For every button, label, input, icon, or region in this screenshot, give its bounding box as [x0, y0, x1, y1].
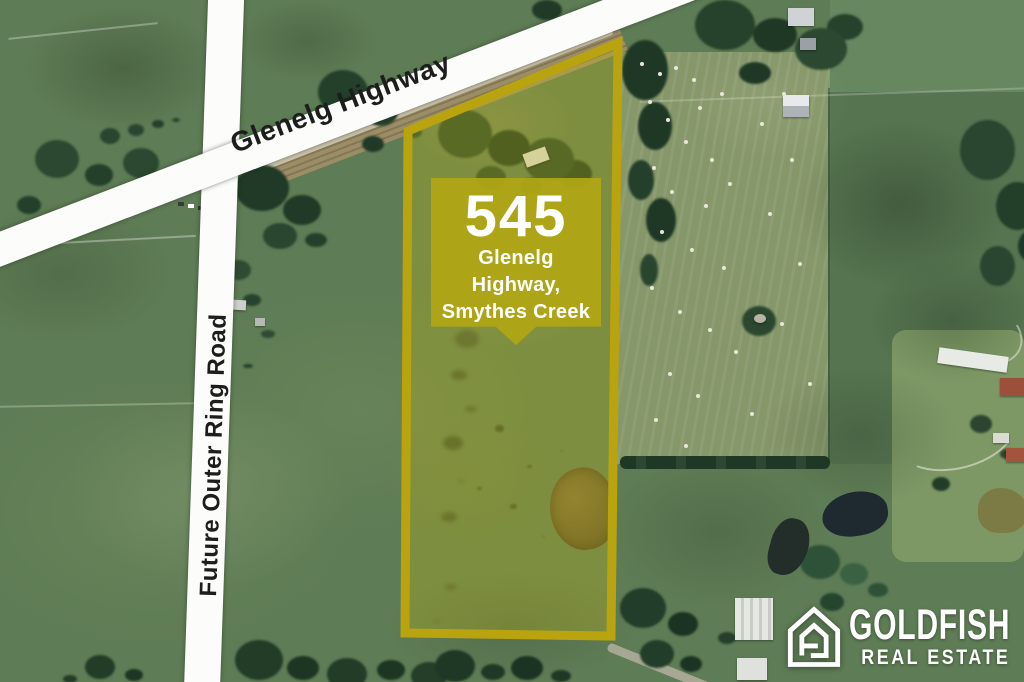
shrub-dots: [495, 425, 504, 432]
farm-track: [8, 22, 157, 40]
address-line-3: Smythes Creek: [431, 299, 601, 326]
tree-cluster: [438, 110, 492, 158]
listing-badge: 545 Glenelg Highway, Smythes Creek: [431, 178, 601, 345]
tree-cluster: [35, 140, 79, 178]
fence-line: [828, 92, 830, 462]
parked-cars: [178, 202, 184, 206]
shed-building: [737, 658, 767, 680]
house-building: [232, 300, 247, 311]
driveway: [606, 642, 721, 682]
creek-vegetation: [455, 330, 479, 348]
red-roof-house: [1000, 378, 1024, 396]
dam-pond: [542, 462, 624, 556]
address-line-2: Highway,: [431, 272, 601, 299]
tree-cluster: [85, 655, 115, 679]
house-outline-icon: [782, 600, 846, 674]
tree-cluster: [622, 40, 668, 100]
aerial-map: Glenelg Highway Future Outer Ring Road 5…: [0, 0, 1024, 682]
pond: [978, 488, 1024, 533]
house-building: [993, 433, 1009, 443]
tree-cluster: [235, 640, 283, 680]
tree-cluster: [960, 120, 1015, 180]
house-building: [788, 8, 814, 26]
shed-building: [783, 95, 809, 117]
shed-building: [735, 598, 773, 640]
brand-tagline: REAL ESTATE: [861, 646, 1010, 670]
street-number: 545: [431, 189, 601, 245]
tree-cluster: [620, 588, 666, 628]
field-top-right: [830, 0, 1024, 92]
brand-name: GOLDFISH: [849, 604, 1010, 646]
tree-cluster: [695, 0, 755, 50]
house-building: [255, 318, 265, 326]
house-building: [800, 38, 816, 50]
red-roof-house: [1006, 448, 1024, 462]
tree-cluster: [100, 128, 120, 144]
address-line-1: Glenelg: [431, 245, 601, 272]
fence-line: [0, 402, 194, 407]
tree-cluster: [435, 650, 475, 682]
rock-outcrop: [754, 314, 766, 323]
brand-text: GOLDFISH REAL ESTATE: [850, 604, 1010, 674]
hedge-row: [620, 456, 830, 469]
brand-logo: GOLDFISH REAL ESTATE: [782, 600, 1010, 674]
homestead-building: [522, 146, 549, 167]
hay-bales: [640, 62, 644, 66]
pond: [819, 488, 890, 541]
